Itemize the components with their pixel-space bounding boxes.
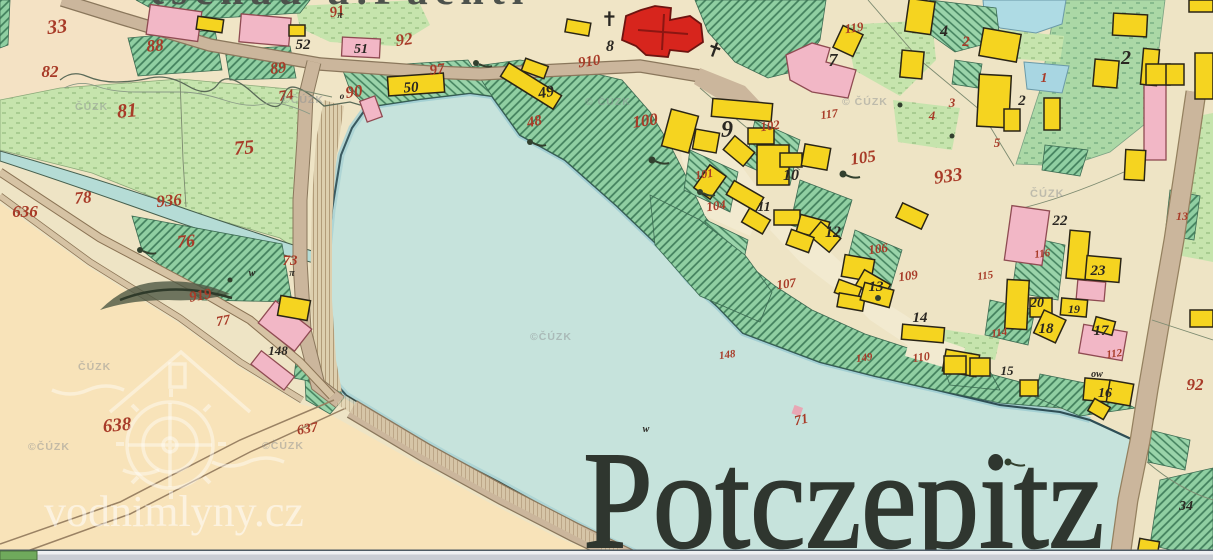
svg-text:13: 13 — [1176, 209, 1188, 223]
svg-text:o: o — [340, 91, 345, 101]
svg-text:117: 117 — [820, 106, 840, 122]
svg-text:104: 104 — [705, 197, 727, 215]
svg-text:636: 636 — [12, 202, 38, 221]
svg-text:110: 110 — [912, 349, 931, 365]
svg-text:933: 933 — [933, 164, 964, 189]
svg-text:©ČÚZK: ©ČÚZK — [262, 439, 304, 452]
svg-text:92: 92 — [394, 29, 414, 50]
svg-text:9: 9 — [721, 117, 733, 143]
svg-text:149: 149 — [855, 351, 874, 365]
svg-text:19: 19 — [1068, 302, 1080, 316]
svg-text:88: 88 — [146, 35, 165, 55]
svg-text:102: 102 — [759, 117, 781, 135]
svg-text:©ČÚZK: ©ČÚZK — [28, 440, 70, 453]
svg-text:78: 78 — [74, 187, 93, 207]
svg-text:33: 33 — [45, 15, 68, 39]
svg-text:18: 18 — [1039, 321, 1055, 337]
svg-text:© ČÚZK: © ČÚZK — [842, 95, 888, 108]
svg-text:8: 8 — [606, 38, 614, 55]
svg-text:5: 5 — [994, 135, 1001, 150]
svg-text:π: π — [337, 10, 343, 21]
svg-text:23: 23 — [1090, 263, 1107, 279]
svg-text:100: 100 — [631, 109, 659, 131]
svg-text:51: 51 — [354, 42, 368, 57]
svg-text:7: 7 — [829, 50, 839, 70]
svg-text:107: 107 — [776, 275, 798, 293]
svg-text:15: 15 — [1001, 363, 1015, 378]
svg-text:52: 52 — [296, 37, 312, 53]
svg-text:49: 49 — [536, 83, 556, 103]
svg-text:17: 17 — [1094, 323, 1110, 339]
svg-text:101: 101 — [694, 166, 714, 182]
svg-text:4: 4 — [939, 23, 948, 40]
svg-text:109: 109 — [897, 267, 919, 285]
svg-text:©ČÚZK: ©ČÚZK — [530, 330, 572, 343]
svg-text:10: 10 — [783, 167, 799, 184]
svg-text:3: 3 — [948, 95, 956, 110]
svg-text:π: π — [289, 268, 295, 279]
svg-text:92: 92 — [1187, 375, 1205, 394]
svg-text:148: 148 — [268, 343, 288, 358]
svg-text:13: 13 — [869, 279, 885, 295]
svg-text:116: 116 — [1034, 247, 1052, 261]
svg-text:97: 97 — [429, 61, 447, 79]
svg-text:82: 82 — [42, 62, 60, 81]
svg-text:20: 20 — [1029, 296, 1044, 311]
svg-text:ČÚZK: ČÚZK — [78, 360, 111, 373]
svg-text:2: 2 — [1017, 93, 1026, 109]
svg-text:22: 22 — [1052, 213, 1069, 229]
svg-text:90: 90 — [344, 81, 364, 102]
svg-text:ČÚZK: ČÚZK — [75, 100, 108, 113]
svg-text:115: 115 — [977, 269, 995, 283]
svg-text:105: 105 — [849, 146, 877, 168]
svg-text:12: 12 — [825, 224, 841, 241]
svg-text:ow: ow — [1091, 369, 1103, 380]
svg-text:4: 4 — [928, 108, 936, 123]
svg-text:75: 75 — [233, 136, 255, 160]
svg-text:148: 148 — [718, 348, 737, 362]
svg-text:910: 910 — [577, 52, 602, 71]
svg-text:14: 14 — [913, 310, 929, 326]
svg-text:112: 112 — [1106, 347, 1124, 361]
svg-text:73: 73 — [283, 253, 299, 269]
svg-text:ČÚZK: ČÚZK — [1030, 187, 1065, 200]
svg-text:50: 50 — [403, 79, 420, 96]
svg-text:©ČÚZK: ©ČÚZK — [282, 93, 324, 106]
svg-text:11: 11 — [757, 200, 770, 215]
svg-text:106: 106 — [867, 240, 889, 258]
svg-text:16: 16 — [1098, 386, 1112, 401]
svg-text:© ČÚZK: © ČÚZK — [585, 95, 631, 108]
svg-text:Potczepitz: Potczepitz — [583, 423, 1104, 560]
svg-text:936: 936 — [156, 190, 184, 211]
svg-text:81: 81 — [116, 99, 138, 123]
svg-text:114: 114 — [991, 326, 1009, 340]
svg-text:119: 119 — [844, 19, 865, 37]
svg-text:vodnimlyny.cz: vodnimlyny.cz — [44, 487, 304, 536]
svg-text:34: 34 — [1178, 499, 1193, 514]
svg-text:✝: ✝ — [601, 9, 618, 31]
svg-text:76: 76 — [176, 230, 196, 251]
svg-text:w: w — [249, 268, 256, 279]
svg-text:2: 2 — [961, 34, 970, 50]
svg-text:89: 89 — [269, 59, 287, 78]
svg-text:1: 1 — [1041, 71, 1048, 86]
svg-text:2: 2 — [1120, 47, 1131, 69]
